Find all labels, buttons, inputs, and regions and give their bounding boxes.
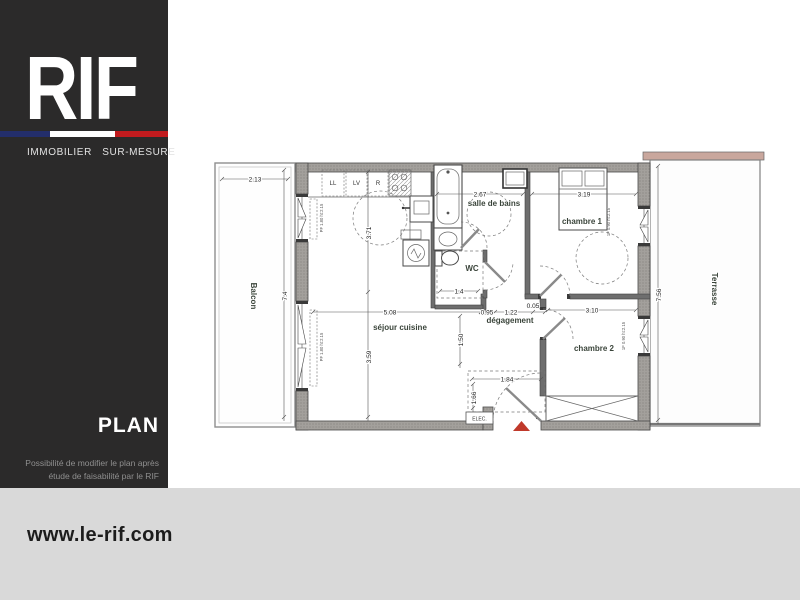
entry-marker-icon (513, 421, 530, 431)
washbasin-icon (434, 228, 462, 250)
appliance-ll-label: LL (330, 181, 337, 187)
room-label-balcon: Balcon (249, 283, 258, 310)
room-label-sejour: séjour cuisine (373, 323, 427, 332)
window-note-f2: 1F 0.90 ht:2.15 (621, 321, 626, 350)
dim-balcon-height: 7.4 (282, 291, 289, 300)
dim-wc-width: 1.4 (454, 289, 463, 296)
dim-bains-width: 2.67 (474, 192, 487, 199)
dim-sejour-height-top: 3.71 (366, 226, 373, 239)
window-note-pf2: PF 1.80 ht:2.15 (319, 332, 324, 361)
floor-plan: LL LV R (0, 0, 800, 600)
dim-terrasse-height: 7.56 (656, 288, 663, 301)
dim-entree-width: 1.84 (501, 377, 514, 384)
room-label-degagement: dégagement (486, 316, 533, 325)
toilet-icon (435, 251, 459, 266)
dim-sejour-height-bottom: 3.59 (366, 350, 373, 363)
room-label-terrasse: Terrasse (710, 273, 719, 306)
dim-chambre2-width: 3.10 (586, 308, 599, 315)
room-label-chambre2: chambre 2 (574, 344, 615, 353)
dim-balcon-width: 2.13 (249, 177, 262, 184)
dim-degagement-c: 0.05 (527, 303, 540, 310)
elec-label: ELEC. (472, 417, 486, 423)
room-label-bains: salle de bains (468, 199, 521, 208)
dim-entree-height: 1.66 (471, 391, 478, 404)
bedroom2-window (638, 316, 650, 356)
french-window-2 (296, 301, 308, 391)
bedroom1-window (638, 206, 650, 246)
stove-icon (389, 170, 411, 196)
bathtub-icon (434, 165, 462, 228)
flyer-page: RIF IMMOBILIER SUR-MESURE PLAN Possibili… (0, 0, 800, 600)
dim-sejour-width: 5.08 (384, 310, 397, 317)
closet-icon (546, 396, 638, 421)
dim-entree-depth: 1.50 (458, 333, 465, 346)
appliance-lv-label: LV (353, 181, 360, 187)
terrace-top-wall (643, 152, 764, 160)
washing-machine-icon (403, 240, 429, 266)
room-label-chambre1: chambre 1 (562, 217, 603, 226)
window-note-f1: 1F 0.90 ht:2.15 (606, 207, 611, 236)
french-window-1 (296, 194, 308, 242)
window-note-pf1: PF 1.80 ht:2.15 (319, 203, 324, 232)
dim-chambre1-width: 3.19 (578, 192, 591, 199)
room-label-wc: WC (465, 264, 479, 273)
appliance-r-label: R (376, 181, 381, 187)
